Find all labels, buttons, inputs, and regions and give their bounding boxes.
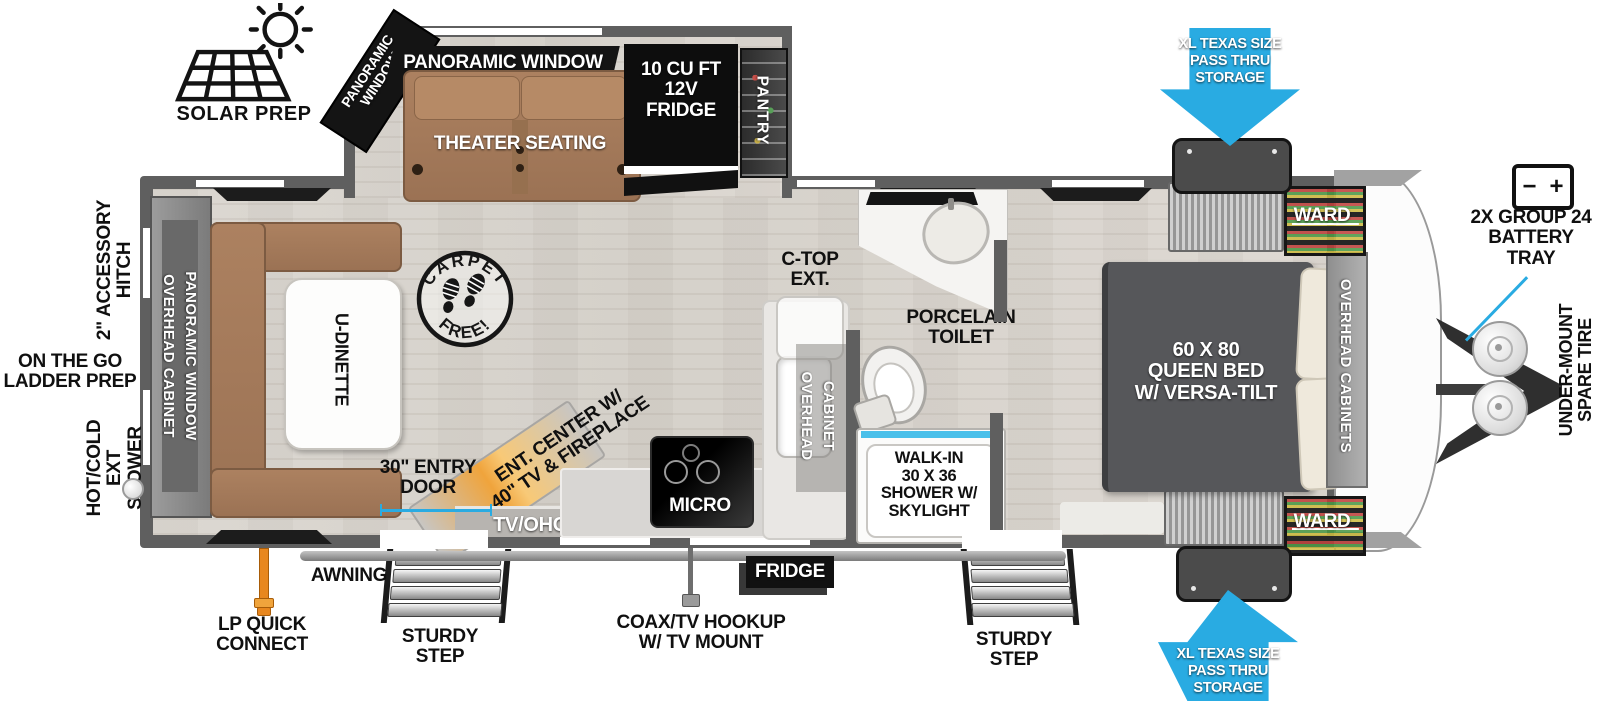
lp-quick-connect-pipe <box>259 548 269 602</box>
propane-tank-2 <box>1472 380 1528 436</box>
theater-console <box>512 120 528 194</box>
window-bar-rear-top <box>196 180 284 187</box>
burner-icon <box>696 460 720 484</box>
accessory-hitch-label: 2" ACCESSORY HITCH <box>95 190 135 350</box>
theater-armrest-dot-left <box>412 164 423 175</box>
under-mount-spare-tire-label: UNDER-MOUNT SPARE TIRE <box>1557 285 1600 455</box>
battery-plus: + <box>1549 173 1563 201</box>
solar-prep-label: SOLAR PREP <box>168 104 320 125</box>
front-cap-trim-top <box>1334 170 1422 186</box>
shower-skylight-strip <box>861 431 997 438</box>
theater-seating-label: THEATER SEATING <box>425 134 615 154</box>
window-dinette-bottom <box>206 530 332 544</box>
window-bar-bath-top <box>797 180 875 187</box>
entry-door-measure-line <box>380 504 492 516</box>
entry-door-opening-left <box>380 530 488 549</box>
ext-shower-knob <box>122 478 144 500</box>
pass-thru-storage-door-bottom <box>1176 546 1292 602</box>
entry-mat <box>1060 502 1164 534</box>
window-bar-kitchen-bottom-1 <box>560 537 650 545</box>
slideout-window-bar <box>410 28 602 35</box>
bedroom-storage-bench-bottom <box>1164 490 1284 546</box>
coax-hookup-stem <box>688 548 693 596</box>
burner-icon <box>682 444 700 462</box>
entry-door-label: 30" ENTRY DOOR <box>366 458 490 499</box>
wardrobe-bottom-label: WARD <box>1286 512 1358 532</box>
ladder-prep-label: ON THE GO LADDER PREP <box>0 352 140 393</box>
kitchen-overhead-label-col1: OVERHEAD <box>798 336 814 496</box>
rear-cabinet-label-col2: PANORAMIC WINDOW <box>182 206 198 506</box>
dinette-table-label: U-DINETTE <box>331 275 350 445</box>
pantry-label: PANTRY <box>753 56 770 166</box>
ctop-ext-label: C-TOP EXT. <box>770 250 850 291</box>
ext-shower-label: HOT/COLD EXT SHOWER <box>85 406 125 530</box>
carpet-free-stamp: CARPET FREE! <box>413 247 517 351</box>
bed-overhead-cabinets-label: OVERHEAD CABINETS <box>1337 251 1353 481</box>
lp-quick-connect-label: LP QUICK CONNECT <box>202 615 322 656</box>
micro-label: MICRO <box>652 496 748 516</box>
pass-thru-bottom-label: XL TEXAS SIZE PASS THRU STORAGE <box>1168 646 1288 697</box>
bath-wall-stub-top <box>994 240 1007 322</box>
battery-tray-label: 2X GROUP 24 BATTERY TRAY <box>1462 208 1600 269</box>
awning-rail <box>300 551 1066 561</box>
entry-door-opening-right <box>962 530 1062 549</box>
pass-thru-top-label: XL TEXAS SIZE PASS THRU STORAGE <box>1166 36 1294 87</box>
solar-prep-icon <box>170 3 318 105</box>
coax-tv-hookup-label: COAX/TV HOOKUP W/ TV MOUNT <box>606 613 796 654</box>
theater-cupholder-2 <box>516 164 524 172</box>
awning-label: AWNING <box>298 566 400 586</box>
coax-hookup-plug <box>682 594 700 607</box>
window-bed-top-1 <box>1040 188 1152 201</box>
theater-seat-back-left <box>414 76 520 120</box>
fridge-compartment-label: FRIDGE <box>748 562 832 582</box>
wardrobe-top-label: WARD <box>1286 206 1358 226</box>
propane-tank-1 <box>1472 321 1528 377</box>
pass-thru-storage-door-top <box>1172 138 1292 194</box>
window-bar-rear-left-1 <box>143 228 150 298</box>
window-dinette-top <box>213 188 331 201</box>
theater-seat-back-right <box>521 76 627 120</box>
battery-icon: − + <box>1512 164 1574 210</box>
fridge-12v-label: 10 CU FT 12V FRIDGE <box>626 60 736 121</box>
sturdy-step-right-label: STURDY STEP <box>960 630 1068 671</box>
bath-wall-stub-bottom <box>990 413 1003 547</box>
window-bar-bed-top <box>1052 180 1144 187</box>
battery-minus: − <box>1522 173 1536 201</box>
burner-icon <box>664 460 688 484</box>
kitchen-overhead-label-col2: CABINET <box>820 336 836 496</box>
rear-cabinet-label-col1: OVERHEAD CABINET <box>160 206 176 506</box>
bath-faucet <box>948 198 954 210</box>
queen-bed-label: 60 X 80 QUEEN BED W/ VERSA-TILT <box>1108 340 1304 404</box>
porcelain-toilet-label: PORCELAIN TOILET <box>895 308 1027 349</box>
sturdy-step-left-label: STURDY STEP <box>384 627 496 668</box>
rv-floorplan-diagram: PANORAMIC WINDOW PANORAMIC WINDOW THEATE… <box>0 0 1600 701</box>
shower-label: WALK-IN 30 X 36 SHOWER W/ SKYLIGHT <box>866 450 992 521</box>
